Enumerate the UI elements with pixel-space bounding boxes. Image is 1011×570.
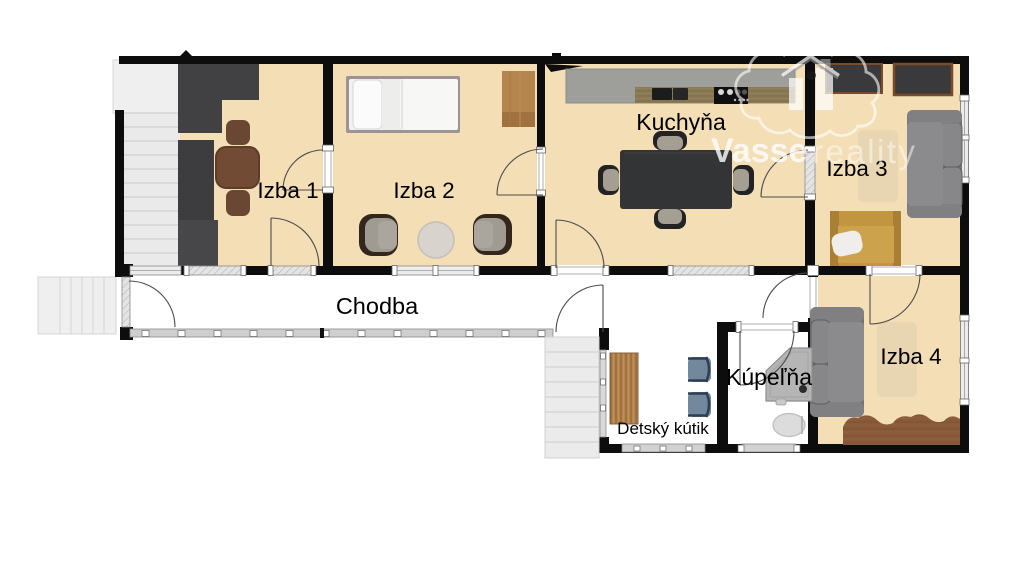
svg-text:Chodba: Chodba (336, 293, 419, 319)
svg-text:Izba 2: Izba 2 (393, 178, 454, 203)
svg-text:Izba 4: Izba 4 (880, 344, 941, 369)
svg-text:Izba 1: Izba 1 (257, 178, 318, 203)
svg-text:Kúpeľňa: Kúpeľňa (726, 364, 812, 390)
svg-text:Vasse: Vasse (711, 132, 807, 170)
svg-text:reality: reality (812, 133, 918, 170)
svg-text:Detský kútik: Detský kútik (617, 419, 709, 438)
